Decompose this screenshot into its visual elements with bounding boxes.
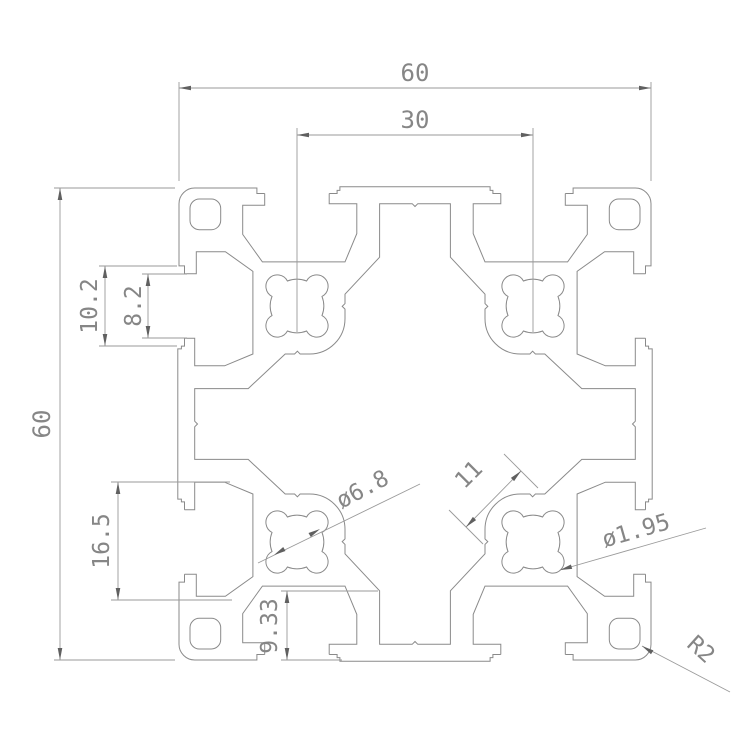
arrowhead	[116, 482, 121, 494]
drawing-canvas: 60 30 60 10.2 8.2 16.5 9.33 ø6.8 11 ø1.9…	[0, 0, 750, 750]
arrowhead	[146, 274, 151, 286]
dim-slot-opening-width: 8.2	[121, 285, 147, 327]
dimension-arrows	[58, 86, 654, 660]
arrowhead	[116, 588, 121, 600]
arrowhead	[560, 565, 572, 571]
arrowhead	[103, 334, 108, 346]
dim-bottom-wall: 9.33	[257, 598, 283, 653]
arrowhead	[297, 133, 309, 138]
dim-corner-radius: R2	[682, 631, 720, 669]
arrowhead	[179, 86, 191, 91]
technical-drawing: 60 30 60 10.2 8.2 16.5 9.33 ø6.8 11 ø1.9…	[0, 0, 750, 750]
arrowhead	[639, 86, 651, 91]
dimension-line-path	[54, 82, 730, 692]
arrowhead	[285, 648, 290, 660]
dim-overall-width: 60	[401, 59, 430, 87]
dim-core-hole-dia: ø6.8	[332, 465, 393, 514]
dim-boss-width: 11	[450, 456, 488, 494]
profile-path	[178, 187, 652, 661]
dim-side-pocket-width: 16.5	[89, 513, 115, 568]
profile-outline	[178, 187, 652, 661]
arrowhead	[274, 547, 286, 555]
dim-slot-pitch: 30	[401, 106, 430, 134]
dim-overall-height: 60	[28, 410, 56, 439]
arrowhead	[58, 188, 63, 200]
arrowhead	[103, 266, 108, 278]
arrowhead	[642, 646, 653, 654]
arrowhead	[146, 326, 151, 338]
arrowhead	[285, 591, 290, 603]
dim-slot-outer-width: 10.2	[77, 278, 103, 333]
arrowhead	[58, 648, 63, 660]
arrowhead	[521, 133, 533, 138]
dimension-lines	[54, 82, 730, 692]
dim-pilot-hole-dia: ø1.95	[599, 509, 673, 553]
